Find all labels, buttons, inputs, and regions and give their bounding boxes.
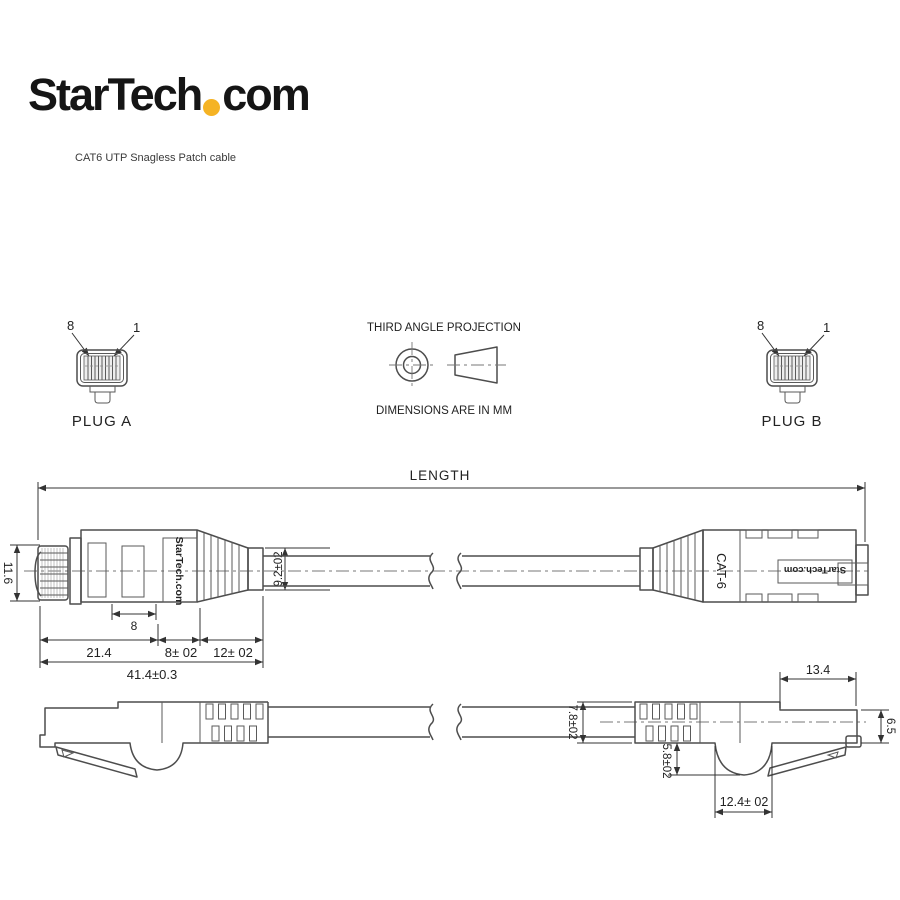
contact-head-hatch — [40, 548, 68, 598]
dim-11-6: 11.6 — [1, 545, 40, 601]
cable-break-icon — [457, 704, 462, 740]
projection-title: THIRD ANGLE PROJECTION — [367, 322, 521, 334]
plug-b-front-view: 8 1 PLUG B — [735, 308, 855, 440]
plug-tip — [856, 545, 868, 595]
dim-label-21-4: 21.4 — [86, 645, 111, 660]
dim-label-8-02: 8± 02 — [165, 645, 197, 660]
logo-dot-icon — [203, 99, 220, 116]
pin8-leader — [762, 333, 779, 356]
length-dimension: LENGTH — [38, 468, 865, 542]
boot-end-cap — [248, 548, 263, 590]
pin1-leader — [804, 335, 824, 356]
boot-ribs — [206, 704, 263, 741]
pin1-label: 1 — [823, 320, 830, 335]
dim-label-6-5: 6.5 — [884, 718, 896, 734]
brand-text: StarTech.com — [173, 537, 185, 606]
dim-row-sections: 21.4 8± 02 12± 02 41.4±0.3 — [40, 596, 263, 682]
product-subtitle: CAT6 UTP Snagless Patch cable — [75, 152, 236, 164]
plug-a-caption: PLUG A — [72, 413, 132, 430]
dim-label-8: 8 — [131, 619, 138, 633]
latch-hinge — [846, 736, 861, 747]
dim-label-11-6: 11.6 — [1, 562, 15, 585]
pin8-label: 8 — [757, 318, 764, 333]
plug-b-cable-step — [780, 386, 805, 392]
dim-6-5: 6.5 — [861, 710, 896, 743]
latch-arm — [768, 747, 846, 776]
cat6-label: CAT-6 — [714, 553, 729, 589]
pin8-label: 8 — [67, 318, 74, 333]
brand-text-reversed: StarTech.com — [784, 564, 846, 575]
connector-side-view-left — [40, 702, 461, 777]
third-angle-projection-symbol: THIRD ANGLE PROJECTION DIMENSIONS ARE IN… — [360, 315, 536, 420]
dim-label-7-8: 7.8±02 — [566, 704, 578, 739]
projection-circles-icon — [389, 342, 435, 388]
housing-window-1 — [88, 543, 106, 597]
dim-5-8: 5.8±02 — [660, 743, 740, 779]
dim-label-12-4: 12.4± 02 — [720, 795, 769, 809]
dim-9-2: 9.2±02 — [265, 548, 330, 590]
plug-b-caption: PLUG B — [761, 413, 822, 430]
units-note: DIMENSIONS ARE IN MM — [376, 405, 512, 417]
spec-sheet: StarTechcom CAT6 UTP Snagless Patch cabl… — [0, 0, 900, 900]
boot-taper — [197, 530, 263, 602]
dim-8: 8 — [112, 604, 156, 633]
boot-ribs — [640, 704, 697, 741]
logo: StarTechcom — [28, 72, 309, 117]
cable-break-icon — [429, 704, 434, 740]
dim-label-5-8: 5.8±02 — [660, 743, 672, 778]
cable-break-icon — [429, 553, 434, 589]
dim-12-4: 12.4± 02 — [715, 746, 772, 818]
latch-hook — [828, 752, 838, 758]
dim-label-41-4: 41.4±0.3 — [127, 667, 178, 682]
logo-text-prefix: StarTech — [28, 72, 201, 117]
boot-taper — [653, 530, 703, 602]
length-label: LENGTH — [410, 468, 471, 483]
connector-top-view-right: CAT-6 StarTech.com — [640, 530, 868, 602]
plug-b-cable-tab — [785, 392, 800, 403]
plug-a-cable-step — [90, 386, 115, 392]
dim-label-13-4: 13.4 — [806, 663, 830, 677]
plug-a-front-view: 8 1 PLUG A — [45, 308, 165, 440]
dim-label-12-02: 12± 02 — [213, 645, 253, 660]
plug-a-cable-tab — [95, 392, 110, 403]
dimension-drawing: LENGTH Star — [0, 450, 900, 880]
pin1-label: 1 — [133, 320, 140, 335]
projection-cone-icon — [447, 347, 506, 383]
pin1-leader — [114, 335, 134, 356]
connector-top-view-left: StarTech.com — [35, 530, 263, 605]
pin8-leader — [72, 333, 89, 356]
contact-head — [38, 546, 68, 600]
dim-13-4: 13.4 — [780, 663, 856, 708]
housing-window-2 — [122, 546, 144, 597]
logo-text-suffix: com — [222, 72, 309, 117]
boot-end-cap — [640, 548, 653, 590]
